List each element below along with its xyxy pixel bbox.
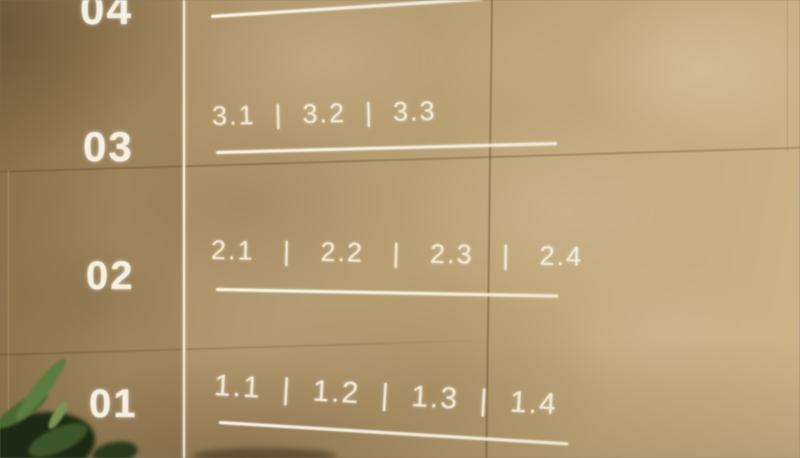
floor-04-label: 04 <box>80 0 133 32</box>
floor-01-underline <box>219 421 569 445</box>
floor-02-units: 2.1 | 2.2 | 2.3 | 2.4 <box>211 234 584 273</box>
plant-leaf <box>45 399 70 431</box>
tile-seam-vertical-right <box>787 0 788 152</box>
floor-02-label: 02 <box>86 256 135 296</box>
plant-leaf <box>0 387 52 434</box>
plant-leaf <box>0 401 102 458</box>
tile-seam-vertical-left <box>8 170 9 458</box>
wall-directory-photo: 04 03 3.1 | 3.2 | 3.3 02 2.1 | 2.2 | 2.3… <box>0 0 800 458</box>
tile-seam-horizontal-lower <box>0 339 504 356</box>
floor-03-underline <box>216 142 557 154</box>
foreground-shadow <box>192 448 337 458</box>
vertical-light-line <box>183 0 185 458</box>
floor-03-label: 03 <box>83 126 134 168</box>
plant-leaf <box>11 354 71 425</box>
floor-04-underline <box>211 0 483 18</box>
plant-leaf <box>90 438 139 458</box>
plant-leaf <box>24 416 92 458</box>
floor-03-units: 3.1 | 3.2 | 3.3 <box>212 95 437 132</box>
floor-01-units: 1.1 | 1.2 | 1.3 | 1.4 <box>213 368 559 423</box>
floor-01-label: 01 <box>89 384 138 424</box>
floor-02-underline <box>216 288 558 297</box>
